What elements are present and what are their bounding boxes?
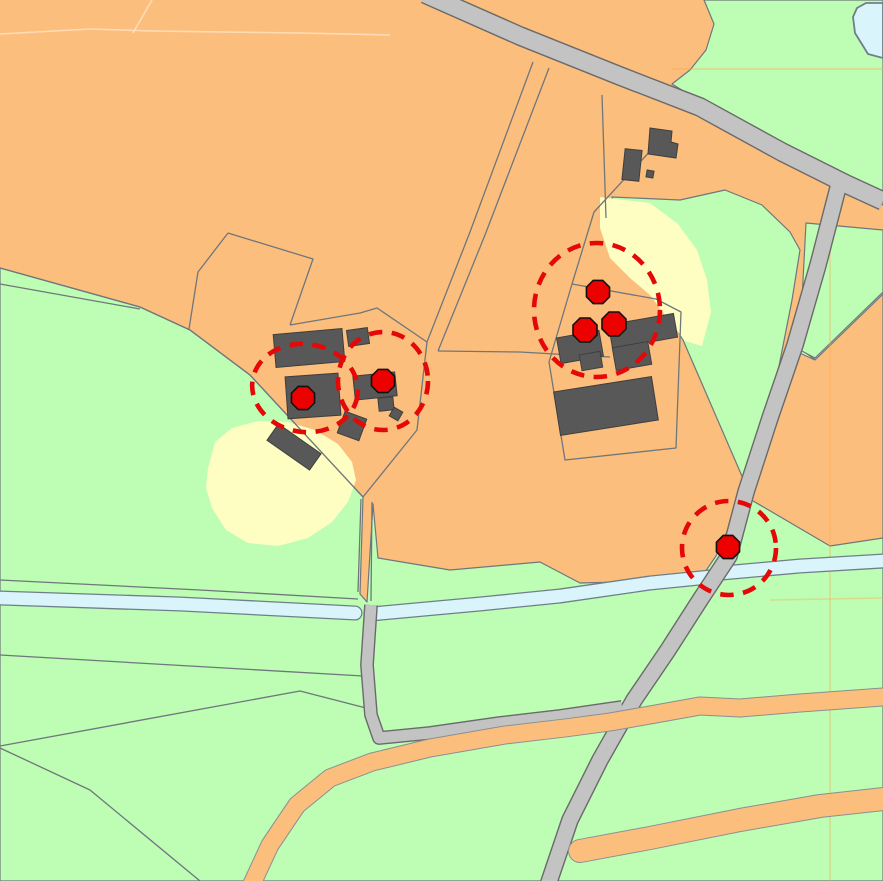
gis-map-canvas[interactable] bbox=[0, 0, 883, 881]
red-point-marker-5[interactable] bbox=[573, 318, 597, 342]
red-point-marker-1[interactable] bbox=[291, 386, 314, 409]
farm-building bbox=[378, 397, 394, 411]
red-point-marker-3[interactable] bbox=[586, 280, 609, 303]
farm-building bbox=[346, 328, 369, 347]
red-point-marker-4[interactable] bbox=[602, 312, 626, 336]
farm-building bbox=[622, 149, 642, 182]
map-viewport bbox=[0, 0, 883, 881]
farm-building bbox=[273, 329, 345, 368]
red-point-marker-6[interactable] bbox=[716, 535, 739, 558]
red-point-marker-2[interactable] bbox=[371, 369, 394, 392]
farm-building bbox=[579, 351, 602, 370]
farm-building bbox=[646, 170, 654, 178]
